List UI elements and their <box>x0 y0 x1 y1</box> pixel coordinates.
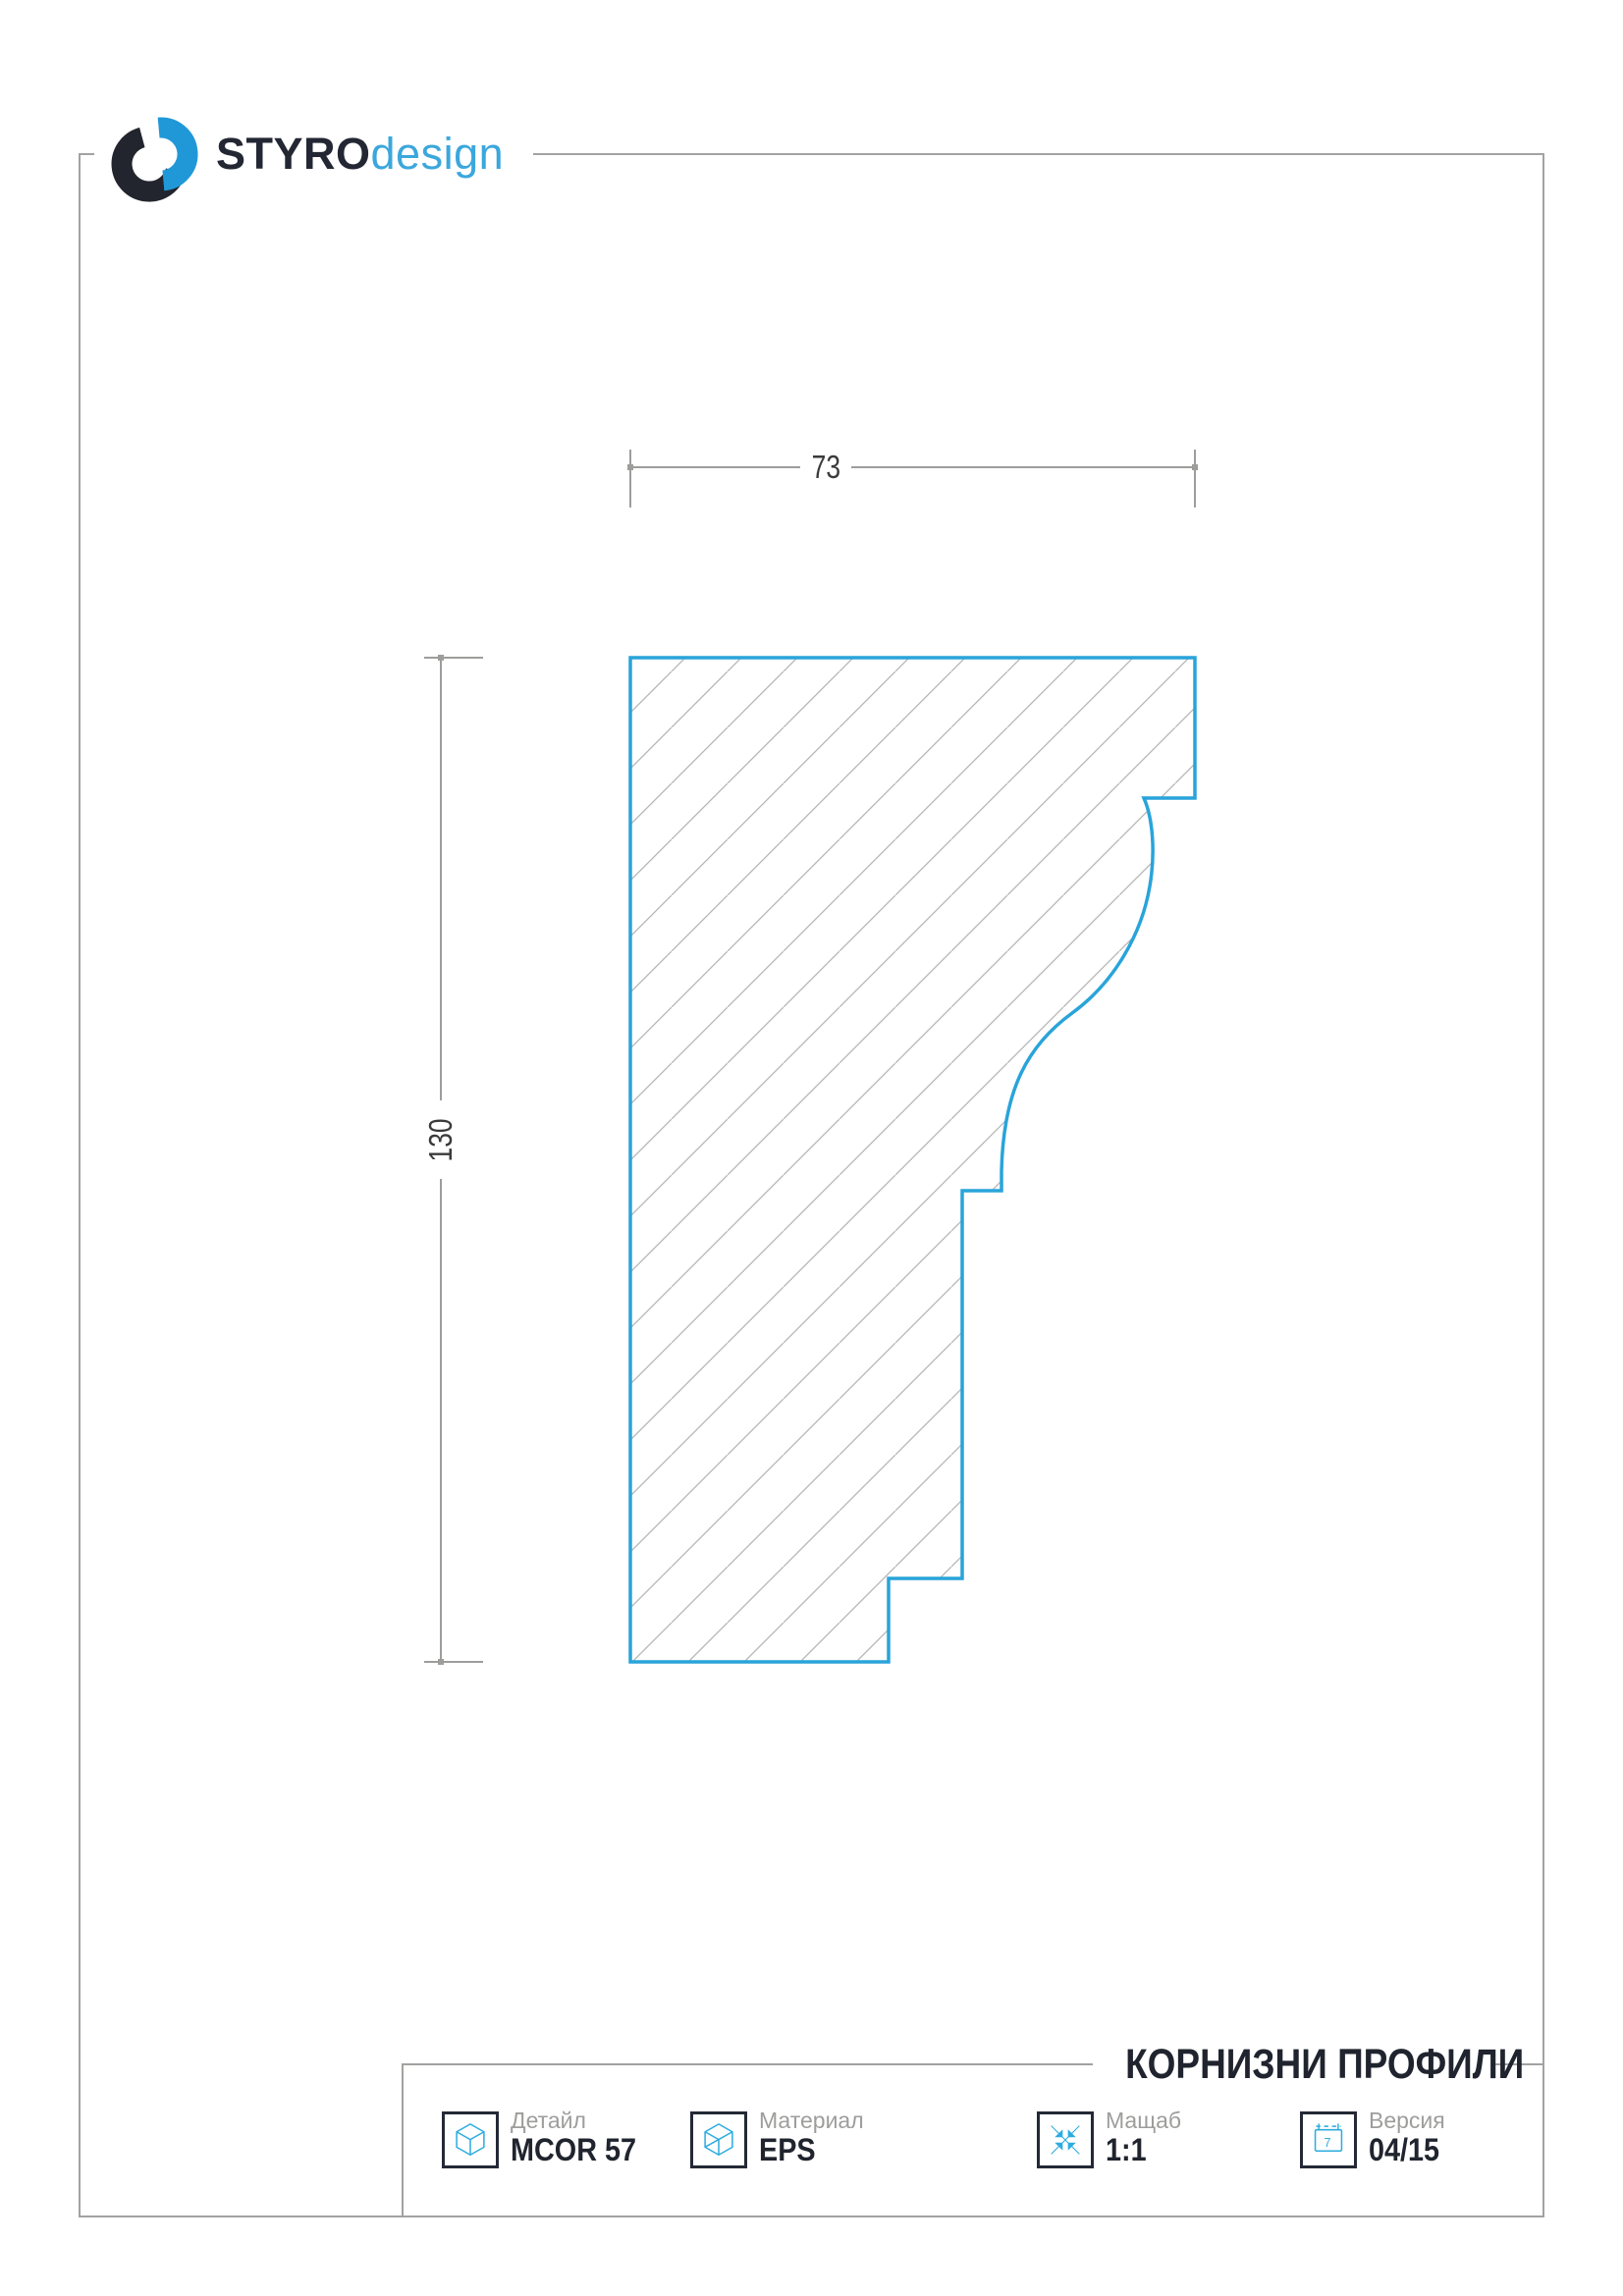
dim-width-value: 73 <box>811 447 839 488</box>
scale-arrows-icon <box>1040 2114 1091 2165</box>
version-label: Версия <box>1369 2108 1447 2133</box>
section-title-text: КОРНИЗНИ ПРОФИЛИ <box>1125 2038 1524 2091</box>
detail-icon-box <box>442 2111 499 2168</box>
cornice-profile-spec-sheet: { "brand": { "name_bold": "STYRO", "name… <box>0 0 1623 2296</box>
detail-label: Детайл <box>511 2108 650 2133</box>
brand-name-bold: STYRO <box>216 129 371 179</box>
dim-width-label: 73 <box>800 447 851 488</box>
calendar-digit: 7 <box>1325 2136 1331 2150</box>
dim-height-endpoint-top <box>438 655 444 661</box>
profile-drawing <box>0 0 1623 2296</box>
brand-wordmark: STYROdesign <box>216 129 504 180</box>
scale-icon-box <box>1037 2111 1094 2168</box>
version-texts: Версия 04/15 <box>1369 2108 1447 2166</box>
scale-value: 1:1 <box>1106 2133 1181 2166</box>
detail-value: MCOR 57 <box>511 2133 650 2166</box>
styrodesign-logo-icon <box>110 113 200 203</box>
brand-name-light: design <box>371 129 505 179</box>
calendar-icon: 7 <box>1303 2114 1354 2165</box>
dim-width-endpoint-right <box>1192 464 1198 470</box>
version-value: 04/15 <box>1369 2133 1447 2166</box>
scale-label: Мащаб <box>1106 2108 1181 2133</box>
material-cube-icon <box>693 2114 744 2165</box>
profile-outline <box>630 658 1195 1662</box>
dim-height-endpoint-bottom <box>438 1659 444 1665</box>
dim-height-value: 130 <box>420 1118 461 1161</box>
material-texts: Материал EPS <box>759 2108 864 2166</box>
scale-texts: Мащаб 1:1 <box>1106 2108 1181 2166</box>
dim-width-endpoint-left <box>627 464 633 470</box>
brand-logo: STYROdesign <box>94 102 533 206</box>
dim-height-label: 130 <box>420 1100 461 1179</box>
material-icon-box <box>690 2111 747 2168</box>
cube-icon <box>445 2114 496 2165</box>
detail-texts: Детайл MCOR 57 <box>511 2108 650 2166</box>
material-value: EPS <box>759 2133 864 2166</box>
material-label: Материал <box>759 2108 864 2133</box>
version-icon-box: 7 <box>1300 2111 1357 2168</box>
section-title: КОРНИЗНИ ПРОФИЛИ <box>1093 2038 1495 2091</box>
dim-width <box>630 450 1195 507</box>
